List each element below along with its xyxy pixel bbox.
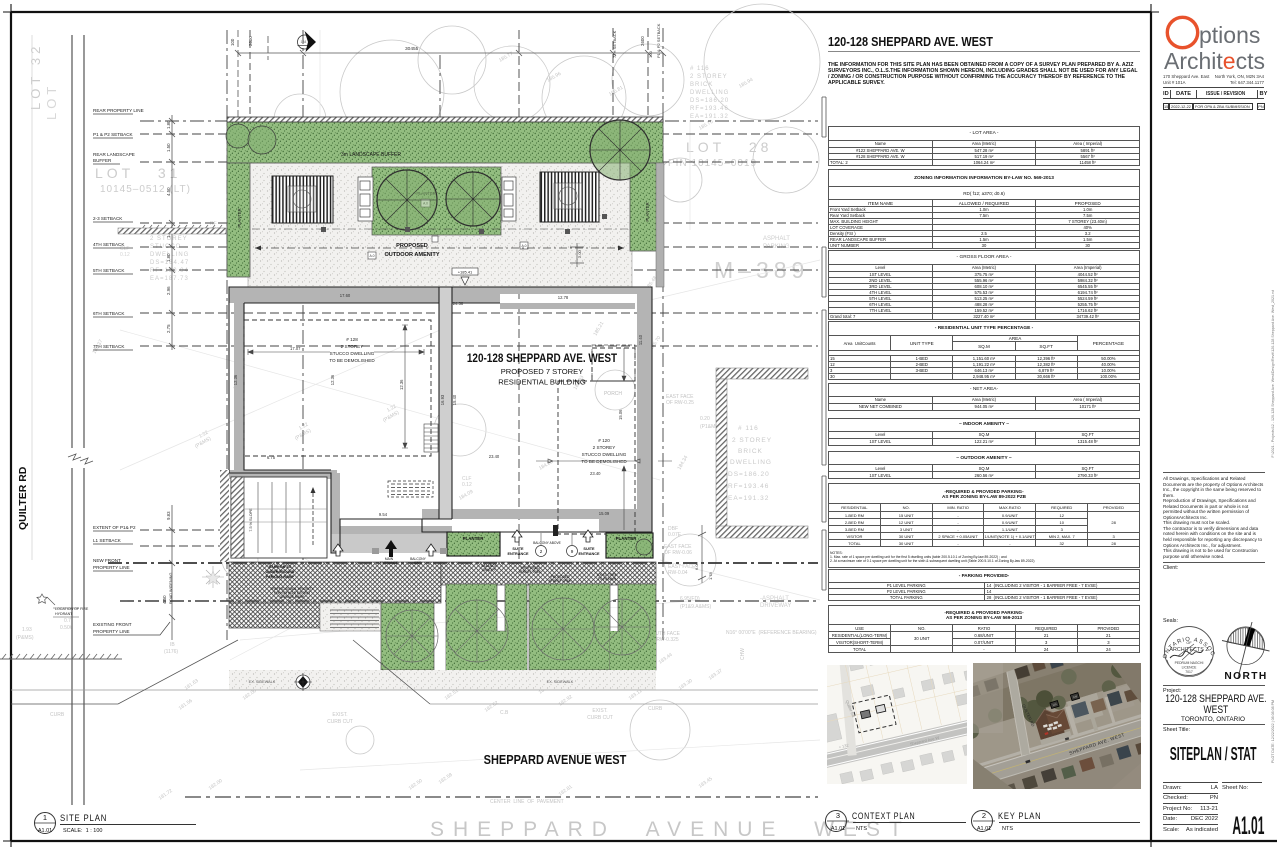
- svg-text:23.40: 23.40: [590, 471, 601, 476]
- svg-text:STUCCO DWELLING: STUCCO DWELLING: [330, 351, 375, 356]
- svg-text:CHW: CHW: [740, 648, 746, 660]
- svg-text:TO BE DEMOLISHED: TO BE DEMOLISHED: [581, 459, 627, 464]
- svg-text:PROPOSED: PROPOSED: [396, 243, 428, 249]
- svg-text:2 STOREY: 2 STOREY: [732, 437, 772, 444]
- svg-text:BRICK: BRICK: [738, 448, 763, 455]
- svg-text:LOT: LOT: [44, 83, 59, 120]
- svg-text:C.B: C.B: [500, 710, 509, 716]
- svg-text:EA=191.32: EA=191.32: [690, 114, 729, 120]
- svg-text:184.34: 184.34: [677, 455, 690, 471]
- svg-text:OF RW-0.25: OF RW-0.25: [666, 400, 694, 406]
- svg-text:12.36: 12.36: [233, 374, 238, 385]
- svg-text:183.30: 183.30: [678, 678, 694, 692]
- svg-text:100: 100: [648, 51, 653, 58]
- svg-text:PORCH: PORCH: [604, 391, 622, 397]
- svg-text:6.00: 6.00: [694, 561, 699, 570]
- svg-text:2 STOREY: 2 STOREY: [593, 445, 616, 450]
- svg-text:0.20: 0.20: [700, 416, 710, 422]
- svg-text:ENT.: ENT.: [414, 561, 421, 565]
- svg-text:DRIVEWAY: DRIVEWAY: [760, 603, 791, 609]
- svg-text:181.56: 181.56: [178, 698, 194, 712]
- svg-text:STREET TREE: STREET TREE: [519, 570, 542, 574]
- svg-text:# 116: # 116: [690, 66, 710, 72]
- svg-text:6TH SETBACK: 6TH SETBACK: [93, 311, 125, 316]
- svg-text:184.09: 184.09: [458, 489, 474, 502]
- svg-text:IB: IB: [170, 642, 175, 648]
- svg-text:NTS: NTS: [1002, 826, 1013, 832]
- svg-text:LOT 32: LOT 32: [28, 43, 43, 110]
- svg-text:RF=190.04: RF=190.04: [150, 268, 189, 274]
- svg-text:PROPOSED 7 STOREY: PROPOSED 7 STOREY: [501, 367, 584, 376]
- svg-text:4.50: 4.50: [166, 187, 171, 196]
- svg-text:ENTRANCE: ENTRANCE: [380, 561, 399, 565]
- svg-text:PLANTER: PLANTER: [645, 202, 650, 221]
- svg-text:SUITE: SUITE: [512, 547, 524, 551]
- svg-text:Architects: Architects: [1164, 48, 1265, 74]
- svg-text:7017: 7017: [1185, 670, 1193, 674]
- svg-text:PROPERTY LINE: PROPERTY LINE: [93, 629, 130, 634]
- svg-text:10145–0512 (LT): 10145–0512 (LT): [100, 184, 191, 195]
- svg-text:RF=193.46: RF=193.46: [728, 483, 769, 490]
- svg-text:0.50#: 0.50#: [60, 625, 73, 631]
- svg-text:PLANTER: PLANTER: [463, 536, 485, 541]
- svg-text:182.92: 182.92: [558, 694, 574, 708]
- svg-text:GARAGE RAMP: GARAGE RAMP: [280, 595, 305, 599]
- svg-text:7.5 % SLOPE: 7.5 % SLOPE: [249, 508, 253, 532]
- svg-text:23.40: 23.40: [489, 454, 500, 459]
- svg-text:CURB: CURB: [50, 712, 65, 718]
- svg-text:PLANTER: PLANTER: [616, 536, 638, 541]
- svg-text:(1176): (1176): [164, 649, 178, 655]
- svg-text:OUTDOOR AMENITY: OUTDOOR AMENITY: [384, 252, 439, 258]
- svg-text:DS=186.20: DS=186.20: [728, 471, 770, 478]
- svg-text:1.50: 1.50: [166, 143, 171, 152]
- svg-text:ENTRANCE: ENTRANCE: [578, 552, 600, 556]
- svg-text:185.21: 185.21: [593, 321, 606, 337]
- svg-text:CENTER LINE OF PAVEMENT: CENTER LINE OF PAVEMENT: [490, 799, 564, 805]
- svg-text:EA=191.32: EA=191.32: [728, 495, 769, 502]
- svg-text:SCALE: 1 : 100: SCALE: 1 : 100: [63, 828, 102, 834]
- svg-text:TO REMAIN: TO REMAIN: [598, 577, 617, 581]
- svg-text:EXISTING FRONT: EXISTING FRONT: [93, 622, 132, 627]
- svg-text:2-3 SETBACK: 2-3 SETBACK: [93, 216, 123, 221]
- svg-text:2600: 2600: [640, 36, 645, 46]
- svg-text:RAMP DN TO: RAMP DN TO: [269, 565, 292, 569]
- svg-text:# 128: # 128: [346, 337, 358, 342]
- svg-text:1.78: 1.78: [708, 571, 713, 580]
- svg-text:STREET TREE: STREET TREE: [549, 579, 572, 583]
- svg-text:16.93: 16.93: [440, 394, 445, 405]
- svg-text:0.7: 0.7: [64, 618, 71, 624]
- svg-text:184: 184: [301, 40, 307, 44]
- svg-text:DS=186.20: DS=186.20: [690, 98, 729, 104]
- svg-text:2600: 2600: [248, 36, 253, 46]
- svg-text:LOCATION OF FIRE: LOCATION OF FIRE: [55, 607, 89, 611]
- svg-text:7TH SETBACK: 7TH SETBACK: [93, 344, 125, 349]
- svg-text:(P1&9.A&MS): (P1&9.A&MS): [680, 604, 711, 610]
- svg-text:2.96: 2.96: [166, 286, 171, 295]
- svg-text:9: 9: [571, 549, 574, 554]
- svg-text:2 STOREY: 2 STOREY: [341, 344, 364, 349]
- svg-text:9.54: 9.54: [379, 512, 388, 517]
- svg-text:11.40: 11.40: [638, 334, 643, 345]
- svg-text:CONTEXT PLAN: CONTEXT PLAN: [852, 810, 915, 821]
- svg-text:ENTRANCE: ENTRANCE: [507, 552, 529, 556]
- svg-text:2.75: 2.75: [166, 324, 171, 333]
- svg-text:A1.01: A1.01: [977, 826, 991, 832]
- svg-text:A.0: A.0: [369, 254, 374, 258]
- svg-text:1: 1: [43, 813, 47, 822]
- svg-text:30455: 30455: [405, 46, 419, 52]
- svg-text:0.07E: 0.07E: [668, 532, 682, 538]
- svg-text:SITE PLAN: SITE PLAN: [60, 812, 107, 823]
- svg-text:PROPERTY LINE: PROPERTY LINE: [93, 565, 130, 570]
- svg-text:CURB CUT: CURB CUT: [587, 715, 613, 721]
- svg-text:1.80: 1.80: [166, 120, 171, 129]
- svg-text:KEY PLAN: KEY PLAN: [998, 810, 1041, 821]
- svg-text:24.38: 24.38: [453, 301, 464, 306]
- svg-text:EXIST.: EXIST.: [332, 712, 347, 718]
- svg-text:+185.41: +185.41: [458, 270, 473, 275]
- svg-text:NEW FRONT: NEW FRONT: [93, 558, 121, 563]
- svg-text:PARKING RAMP: PARKING RAMP: [266, 575, 294, 579]
- svg-text:BRICK: BRICK: [690, 82, 713, 88]
- svg-text:15.40: 15.40: [452, 394, 457, 405]
- svg-text:BUFFER: BUFFER: [93, 158, 112, 163]
- svg-text:CURB: CURB: [648, 706, 663, 712]
- svg-text:100: 100: [230, 38, 235, 46]
- svg-text:SHEPPARD AVENUE WEST: SHEPPARD AVENUE WEST: [484, 753, 627, 767]
- svg-text:183.37: 183.37: [708, 668, 724, 682]
- svg-text:TO BE DEMOLISHED: TO BE DEMOLISHED: [329, 358, 375, 363]
- svg-text:5TH SETBACK: 5TH SETBACK: [93, 268, 125, 273]
- svg-text:UNDERGROUND: UNDERGROUND: [266, 570, 295, 574]
- svg-text:2: 2: [540, 549, 543, 554]
- svg-text:P1 & P2 SETBACK: P1 & P2 SETBACK: [93, 132, 134, 137]
- svg-text:DWELLING: DWELLING: [690, 90, 729, 96]
- svg-text:17.60: 17.60: [340, 293, 351, 298]
- svg-text:183.45: 183.45: [698, 776, 714, 790]
- svg-text:LOT 31: LOT 31: [95, 165, 181, 181]
- svg-text:182.62: 182.62: [484, 700, 500, 714]
- svg-text:OF: OF: [1186, 641, 1192, 645]
- svg-text:2: 2: [982, 811, 986, 820]
- svg-text:# 116: # 116: [738, 425, 759, 432]
- svg-text:EXIST.: EXIST.: [592, 708, 607, 714]
- svg-text:# 120: # 120: [598, 438, 610, 443]
- svg-text:4TH SETBACK: 4TH SETBACK: [93, 242, 125, 247]
- svg-text:OF RW-0.06: OF RW-0.06: [664, 550, 692, 556]
- svg-text:EXTENT OF P1& P2: EXTENT OF P1& P2: [93, 525, 136, 530]
- svg-text:ptions: ptions: [1199, 22, 1260, 48]
- svg-text:181.63: 181.63: [184, 678, 200, 692]
- svg-text:EX. SIDEWALK: EX. SIDEWALK: [249, 680, 276, 684]
- svg-text:0.12: 0.12: [462, 482, 472, 488]
- svg-text:3m LANDSCAPE BUFFER: 3m LANDSCAPE BUFFER: [341, 152, 401, 158]
- svg-text:7TH SETBACK: 7TH SETBACK: [612, 30, 617, 58]
- svg-text:NTS: NTS: [856, 826, 867, 832]
- svg-text:4.50: 4.50: [162, 595, 167, 604]
- svg-text:SUITE: SUITE: [583, 547, 595, 551]
- svg-text:BALCONY ABOVE: BALCONY ABOVE: [533, 541, 562, 545]
- svg-text:ASPHALT: ASPHALT: [763, 236, 790, 242]
- svg-text:HYDRANT: HYDRANT: [55, 612, 73, 616]
- svg-text:REAR PROPERTY LINE: REAR PROPERTY LINE: [93, 108, 144, 113]
- svg-text:PIN 10145–0019: PIN 10145–0019: [668, 158, 757, 169]
- svg-text:15.06: 15.06: [618, 409, 623, 420]
- svg-text:P1 & P2 SETBACK: P1 & P2 SETBACK: [656, 23, 661, 58]
- svg-text:15.09: 15.09: [599, 511, 610, 516]
- svg-text:CANOPY: CANOPY: [482, 568, 497, 572]
- svg-text:0.12: 0.12: [120, 252, 130, 258]
- svg-text:A1.01: A1.01: [831, 826, 845, 832]
- svg-text:185.94: 185.94: [738, 77, 754, 90]
- svg-text:NORTH: NORTH: [1224, 671, 1267, 682]
- svg-text:182.00: 182.00: [208, 778, 224, 792]
- svg-text:LICENCE: LICENCE: [1182, 666, 1197, 670]
- svg-text:DWELLING: DWELLING: [730, 459, 772, 466]
- svg-text:182.58: 182.58: [438, 772, 454, 786]
- svg-text:9.83: 9.83: [166, 511, 171, 520]
- svg-text:CURB CUT: CURB CUT: [327, 719, 353, 725]
- svg-text:EX. SIDEWALK: EX. SIDEWALK: [547, 680, 574, 684]
- svg-text:6.75: 6.75: [267, 455, 276, 460]
- svg-text:RW-0.04: RW-0.04: [668, 570, 688, 576]
- svg-text:A.0: A.0: [521, 244, 526, 248]
- svg-text:17.07: 17.07: [290, 346, 301, 351]
- svg-text:RF=193.46: RF=193.46: [690, 106, 729, 112]
- svg-text:1.93: 1.93: [22, 627, 32, 633]
- svg-text:2 STOREY: 2 STOREY: [690, 74, 728, 80]
- svg-text:N16° 00'00"E (REFERENCE BEARI: N16° 00'00"E (REFERENCE BEARING): [726, 630, 817, 636]
- svg-text:LOT 28: LOT 28: [686, 139, 772, 155]
- svg-text:12.36: 12.36: [399, 379, 404, 390]
- svg-text:ARCHITECTS Z: ARCHITECTS Z: [1169, 647, 1209, 653]
- svg-text:A1.01: A1.01: [38, 828, 52, 834]
- svg-text:ROAD WIDENING: ROAD WIDENING: [169, 573, 173, 604]
- svg-text:REAR LANDSCAPE: REAR LANDSCAPE: [93, 152, 135, 157]
- svg-text:L1 SETBACK: L1 SETBACK: [93, 538, 122, 543]
- svg-text:183.44: 183.44: [658, 652, 674, 666]
- svg-text:185.81: 185.81: [608, 85, 624, 98]
- svg-text:(P&MS): (P&MS): [16, 635, 34, 641]
- svg-text:PLANTER: PLANTER: [237, 208, 242, 227]
- svg-text:RESIDENTIAL BUILDING: RESIDENTIAL BUILDING: [498, 378, 586, 387]
- svg-text:STUCCO DWELLING: STUCCO DWELLING: [582, 452, 627, 457]
- svg-text:EA=187.73: EA=187.73: [150, 276, 189, 282]
- svg-text:PEDRUM NAGCHI: PEDRUM NAGCHI: [1175, 661, 1204, 665]
- svg-text:3: 3: [836, 811, 840, 820]
- svg-text:120-128 SHEPPARD AVE. WEST: 120-128 SHEPPARD AVE. WEST: [467, 352, 617, 365]
- svg-text:182.50: 182.50: [408, 778, 424, 792]
- svg-text:12.36: 12.36: [330, 374, 335, 385]
- svg-text:1.80: 1.80: [166, 253, 171, 262]
- svg-text:12.78: 12.78: [558, 295, 569, 300]
- svg-text:QUILTER RD: QUILTER RD: [17, 466, 29, 530]
- svg-text:181.72: 181.72: [158, 788, 174, 802]
- svg-text:182.81: 182.81: [558, 784, 574, 798]
- svg-text:2.00: 2.00: [577, 249, 582, 258]
